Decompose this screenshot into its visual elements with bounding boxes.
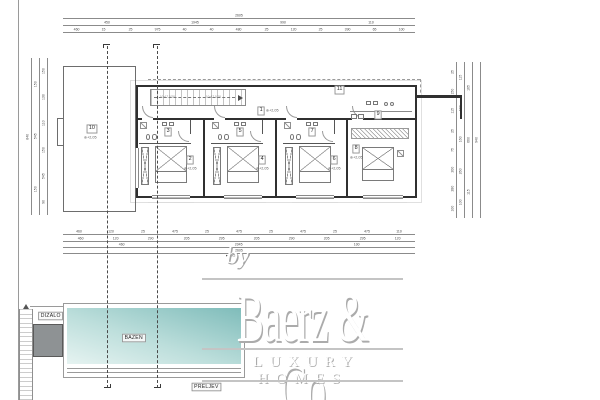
dim-value: 200 <box>450 164 454 175</box>
section-flag-bottom-2 <box>154 384 161 388</box>
floor-plan-sheet: 2605 4501945990110 460152597540404802512… <box>0 0 600 400</box>
terrace-step <box>57 118 64 146</box>
level-living: ⊕+2,05 <box>350 155 363 159</box>
section-line-2 <box>157 46 158 388</box>
watermark-tagline: LUXURY HOMES <box>202 354 403 388</box>
dim-chain-top-detail: 46015259754040480251202539065100 <box>63 25 415 33</box>
dim-value: 160 <box>458 131 462 149</box>
dim-value: 65 <box>367 28 383 32</box>
level-terrace: ⊕+2,05 <box>84 135 97 139</box>
dim-value: 115 <box>450 105 454 116</box>
wardrobe-1 <box>141 147 149 185</box>
dim-value: 100 <box>394 28 410 32</box>
dim-chain-right-detail: 251501152575200280100 <box>449 62 457 218</box>
bath2-wc-2 <box>224 134 229 140</box>
room-label-bath2: 5 <box>236 127 244 136</box>
dim-value: 25 <box>450 66 454 77</box>
dim-value: 40 <box>204 28 220 32</box>
bath1-sink-2 <box>169 122 174 126</box>
room-label-bath3: 7 <box>308 127 316 136</box>
dim-value: 110 <box>41 116 45 131</box>
dim-value: 150 <box>41 142 45 157</box>
room-label-bath1: 3 <box>164 127 172 136</box>
dim-value: 25 <box>258 28 274 32</box>
bath3-sink-2 <box>313 122 318 126</box>
level-value: +2,05 <box>269 109 278 113</box>
window-sill-2 <box>220 202 266 203</box>
divider-wall-2 <box>275 118 277 196</box>
dim-chain-right-sub: 115190160260100 <box>457 62 465 218</box>
pool-lift <box>33 324 63 357</box>
stair-direction-arrow-icon <box>238 95 243 101</box>
dim-value: 260 <box>458 162 462 180</box>
bath2-wc-1 <box>218 134 223 140</box>
bed-1 <box>155 146 187 183</box>
lift-label: DIZALO <box>38 312 63 321</box>
wardrobe-2 <box>213 147 221 185</box>
section-line-1 <box>107 46 108 388</box>
bath3-sink-1 <box>306 122 311 126</box>
level-bed3: ⊕+2,05 <box>328 166 341 170</box>
room-label-bed1: 2 <box>186 155 194 164</box>
dim-value: 120 <box>285 28 301 32</box>
dim-value: 40 <box>177 28 193 32</box>
dim-value: 15 <box>96 28 112 32</box>
dim-value: 25 <box>450 125 454 136</box>
dining-table <box>351 128 409 139</box>
dim-value: 150 <box>41 63 45 78</box>
watermark-rule-bottom <box>202 380 403 382</box>
bath1-wc-2 <box>152 134 157 140</box>
nightstand <box>397 150 404 157</box>
bed-3 <box>299 146 331 183</box>
dim-value: 130 <box>41 90 45 105</box>
bed-2 <box>227 146 259 183</box>
bath2-sink-1 <box>234 122 239 126</box>
dim-chain-left-sub: 150545150 <box>32 58 40 215</box>
kitchen-appliance-1 <box>351 114 357 119</box>
bath3-shower <box>284 122 291 129</box>
bath1-partition <box>139 143 191 144</box>
door-opening-unit1 <box>142 118 153 120</box>
window-sill-3 <box>292 202 338 203</box>
kitchen-appliance-2 <box>358 114 364 119</box>
pool-label: BAZEN <box>122 334 145 343</box>
section-flag-bottom-1 <box>104 384 111 388</box>
dim-value: 75 <box>450 144 454 155</box>
dim-value: 975 <box>150 28 166 32</box>
window-sill-1 <box>148 202 194 203</box>
level-value: +2,05 <box>87 136 96 140</box>
stair-note-left: 10x17,5/28 <box>160 96 175 99</box>
wardrobe-3 <box>285 147 293 185</box>
level-value: +2,05 <box>259 167 268 171</box>
dim-value: 280 <box>450 183 454 194</box>
bath3-wc-2 <box>296 134 301 140</box>
bath3-side-wall <box>334 120 335 134</box>
level-bed1: ⊕+2,05 <box>184 166 197 170</box>
overflow-label: PRELJEV <box>192 383 222 392</box>
room-label-bed2: 4 <box>258 155 266 164</box>
room-label-kitchen: 9 <box>374 110 382 119</box>
dim-value: 390 <box>339 28 355 32</box>
window-unit4 <box>363 195 403 199</box>
dim-value: 545 <box>41 168 45 183</box>
dim-value: 90 <box>41 194 45 209</box>
kitchen-hob-2 <box>390 102 394 106</box>
pool-deck-line-left <box>30 306 63 307</box>
watermark-by: by <box>226 243 249 270</box>
kitchen-sink-1 <box>366 101 371 105</box>
dim-value: 840 <box>25 91 29 182</box>
bed-4 <box>362 147 394 181</box>
bath2-side-wall <box>262 120 263 134</box>
roof-dashed-line <box>148 79 420 80</box>
bed-3-mattress <box>299 146 331 172</box>
stair-note-right: 10x17,5/28 <box>206 96 221 99</box>
room-label-living: 8 <box>352 144 360 153</box>
bath1-sink-1 <box>162 122 167 126</box>
door-opening-unit3 <box>286 118 297 120</box>
level-value: +2,05 <box>331 167 340 171</box>
entry-wing-wall-top <box>415 95 462 98</box>
kitchen-sink-2 <box>373 101 378 105</box>
divider-wall-3 <box>346 118 348 196</box>
room-label-bed3: 6 <box>330 155 338 164</box>
room-label-roof: 11 <box>335 85 345 94</box>
dim-value: 150 <box>33 174 37 204</box>
dim-value: 115 <box>466 177 470 207</box>
dim-value: 100 <box>450 203 454 214</box>
kitchen-hob-1 <box>384 102 388 106</box>
level-bed2: ⊕+2,05 <box>256 166 269 170</box>
room-label-terrace: 10 <box>87 124 98 133</box>
level-value: +2,05 <box>353 156 362 160</box>
bath3-wc-1 <box>290 134 295 140</box>
bath2-partition <box>211 143 263 144</box>
dim-value: 150 <box>33 69 37 99</box>
outdoor-staircase <box>19 309 33 400</box>
bed-2-mattress <box>227 146 259 172</box>
dim-value: 165 <box>466 73 470 103</box>
dim-chain-left-detail: 15013011015054590 <box>40 58 48 215</box>
bath3-partition <box>283 143 335 144</box>
dim-chain-left-total: 840 <box>24 58 32 215</box>
dim-chain-right-total: 940 <box>473 62 481 218</box>
room-label-hall: 1 <box>257 106 265 115</box>
terrace-outline <box>63 66 136 212</box>
dim-chain-right-major: 165660115 <box>465 62 473 218</box>
divider-wall-1 <box>203 118 205 196</box>
window-unit2 <box>224 195 262 199</box>
window-terrace-side <box>135 148 139 188</box>
bath1-side-wall <box>190 120 191 134</box>
dim-value: 115 <box>458 69 462 87</box>
dim-value: 940 <box>474 95 478 185</box>
bed-1-mattress <box>155 146 187 172</box>
window-unit3 <box>296 195 334 199</box>
dim-value: 25 <box>123 28 139 32</box>
level-hall: ⊕+2,05 <box>266 108 279 112</box>
bath1-shower <box>140 122 147 129</box>
bath2-sink-2 <box>241 122 246 126</box>
bed-4-mattress <box>362 147 394 170</box>
dim-value: 460 <box>69 28 85 32</box>
dim-value: 480 <box>231 28 247 32</box>
bath1-wc-1 <box>146 134 151 140</box>
stair-up-arrow-icon <box>23 304 29 309</box>
watermark-rule-middle <box>202 348 403 350</box>
entry-wing-wall-side <box>460 95 463 119</box>
dim-value: 660 <box>466 125 470 155</box>
dim-value: 100 <box>458 193 462 211</box>
dim-value: 545 <box>33 121 37 151</box>
level-value: +2,05 <box>187 167 196 171</box>
door-opening-unit2 <box>214 118 225 120</box>
dim-value: 25 <box>312 28 328 32</box>
bath2-shower <box>212 122 219 129</box>
window-sill-4 <box>359 202 407 203</box>
